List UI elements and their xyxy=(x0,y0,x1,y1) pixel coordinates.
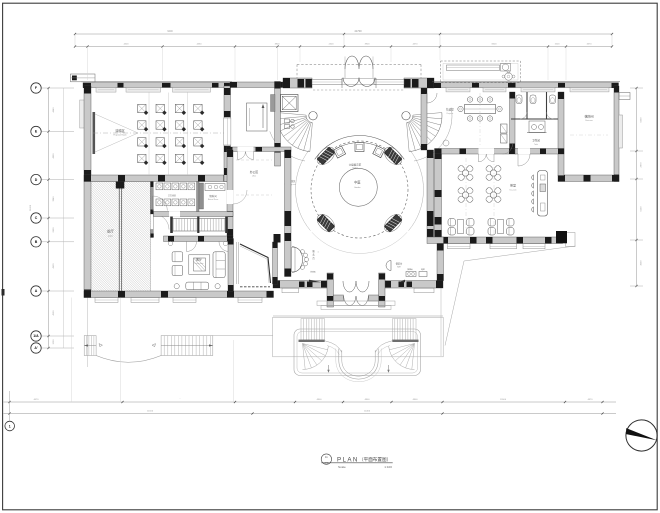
svg-text:4500: 4500 xyxy=(53,310,55,316)
svg-text:3840: 3840 xyxy=(53,196,55,202)
svg-text:涂鸦区: 涂鸦区 xyxy=(115,128,125,133)
svg-text:6100: 6100 xyxy=(641,206,643,212)
svg-text:4400: 4400 xyxy=(124,44,130,46)
svg-text:1200: 1200 xyxy=(53,339,55,345)
svg-text:9400: 9400 xyxy=(167,30,173,33)
svg-text:棋牌间: 棋牌间 xyxy=(584,114,593,119)
svg-text:中庭: 中庭 xyxy=(354,179,361,184)
svg-text:14400: 14400 xyxy=(364,411,371,413)
svg-text:PLAN: PLAN xyxy=(337,456,359,463)
svg-text:office: office xyxy=(252,176,256,178)
svg-text:12600: 12600 xyxy=(500,399,507,401)
svg-text:3800: 3800 xyxy=(275,44,281,46)
svg-text:Garden: Garden xyxy=(352,167,358,170)
svg-text:Scale: Scale xyxy=(338,465,346,469)
svg-text:4470: 4470 xyxy=(413,44,419,46)
svg-text:4800: 4800 xyxy=(413,399,419,401)
svg-text:3900: 3900 xyxy=(365,44,371,46)
svg-text:4800: 4800 xyxy=(365,399,371,401)
svg-text:Toilet: Toilet xyxy=(534,143,538,146)
svg-text:茶室: 茶室 xyxy=(510,183,516,188)
svg-text:14100: 14100 xyxy=(147,411,154,413)
svg-text:41700: 41700 xyxy=(354,29,362,33)
svg-text:4800: 4800 xyxy=(53,153,55,159)
svg-text:4870: 4870 xyxy=(588,399,594,401)
svg-text:Staircase: Staircase xyxy=(585,119,593,122)
svg-text:办公区: 办公区 xyxy=(250,170,259,174)
svg-text:1: 1 xyxy=(9,424,11,428)
svg-text:4440: 4440 xyxy=(53,107,55,113)
svg-text:卫生间: 卫生间 xyxy=(532,139,540,143)
svg-text:Projector Room: Projector Room xyxy=(113,134,127,137)
svg-text:Tea-room: Tea-room xyxy=(509,188,517,191)
svg-text:物料间: 物料间 xyxy=(209,194,217,198)
svg-text:1:100: 1:100 xyxy=(384,465,392,469)
svg-text:1/A: 1/A xyxy=(33,334,39,338)
svg-text:4800: 4800 xyxy=(317,399,323,401)
svg-text:Garden: Garden xyxy=(354,186,360,189)
svg-text:（平面布置图）: （平面布置图） xyxy=(359,456,391,463)
svg-text:2870: 2870 xyxy=(641,162,643,168)
svg-text:Living room: Living room xyxy=(195,262,204,265)
svg-text:8400: 8400 xyxy=(492,44,498,46)
svg-text:3470: 3470 xyxy=(587,44,593,46)
svg-text:沙盘展示区: 沙盘展示区 xyxy=(349,162,362,166)
svg-text:前厅: 前厅 xyxy=(107,229,114,234)
svg-text:2400: 2400 xyxy=(53,227,55,233)
svg-text:2400: 2400 xyxy=(329,44,335,46)
svg-text:4600: 4600 xyxy=(641,260,643,266)
svg-text:1500: 1500 xyxy=(555,44,561,46)
svg-text:4920: 4920 xyxy=(53,263,55,269)
svg-text:4460: 4460 xyxy=(197,44,203,46)
svg-text:客厅: 客厅 xyxy=(196,257,202,262)
svg-text:patio: patio xyxy=(108,235,114,238)
svg-text:恰谈室: 恰谈室 xyxy=(446,108,454,112)
svg-text:Projector: Projector xyxy=(447,112,454,115)
svg-text:4670: 4670 xyxy=(34,399,40,401)
svg-text:A': A' xyxy=(34,346,38,350)
svg-text:6300: 6300 xyxy=(641,117,643,123)
svg-text:21600: 21600 xyxy=(30,204,32,211)
